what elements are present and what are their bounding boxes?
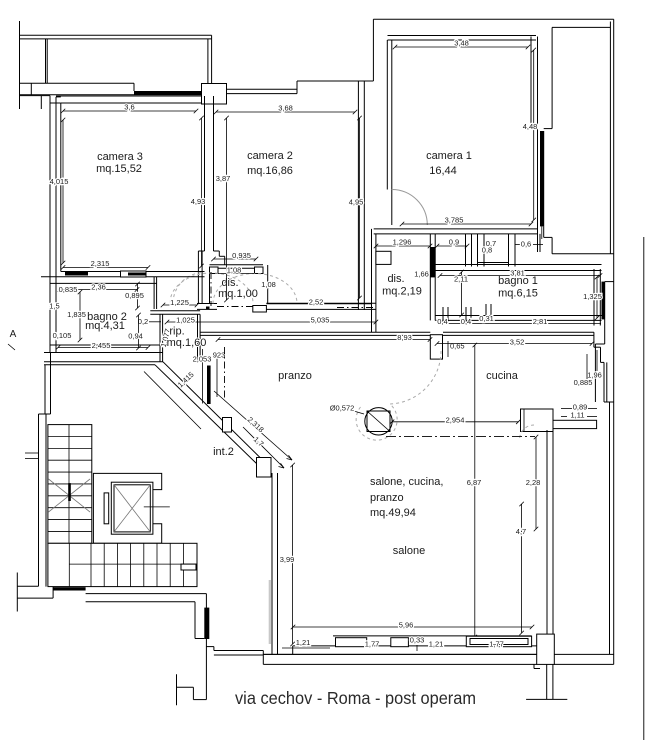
svg-text:1,296: 1,296: [393, 238, 412, 247]
svg-text:3,52: 3,52: [510, 338, 525, 347]
svg-text:1,08: 1,08: [261, 280, 276, 289]
svg-text:1,08: 1,08: [227, 266, 242, 275]
svg-text:pranzo: pranzo: [278, 370, 312, 382]
svg-text:0,4: 0,4: [437, 317, 447, 326]
svg-text:0,6: 0,6: [521, 239, 531, 248]
svg-text:salone, cucina,: salone, cucina,: [370, 476, 443, 488]
svg-text:mq.16,86: mq.16,86: [247, 165, 293, 177]
svg-text:0,895: 0,895: [125, 291, 144, 300]
svg-text:0,4: 0,4: [461, 317, 471, 326]
svg-text:16,44: 16,44: [429, 165, 457, 177]
svg-text:0,94: 0,94: [128, 332, 143, 341]
svg-text:2,52: 2,52: [309, 298, 324, 307]
svg-text:1,66: 1,66: [414, 269, 429, 278]
svg-text:pranzo: pranzo: [370, 492, 404, 504]
svg-text:3,68: 3,68: [278, 104, 293, 113]
svg-text:5,96: 5,96: [399, 621, 414, 630]
svg-text:mq.2,19: mq.2,19: [382, 286, 422, 298]
svg-text:mq.4,31: mq.4,31: [85, 320, 125, 332]
svg-text:rip.: rip.: [169, 326, 184, 338]
svg-text:1,11: 1,11: [570, 411, 584, 420]
svg-text:1,025: 1,025: [176, 316, 195, 325]
svg-text:2,36: 2,36: [91, 283, 106, 292]
svg-text:3,785: 3,785: [445, 216, 464, 225]
svg-text:4,95: 4,95: [349, 198, 364, 207]
svg-text:1,325: 1,325: [583, 292, 602, 301]
svg-text:4,015: 4,015: [50, 177, 69, 186]
svg-text:A: A: [10, 329, 17, 340]
svg-text:2,954: 2,954: [446, 416, 465, 425]
svg-text:3,6: 3,6: [124, 103, 134, 112]
svg-text:0,835: 0,835: [59, 285, 78, 294]
svg-text:1,5: 1,5: [49, 302, 59, 311]
svg-text:mq.15,52: mq.15,52: [96, 163, 142, 175]
svg-text:camera 3: camera 3: [97, 151, 143, 163]
svg-text:2,28: 2,28: [526, 478, 541, 487]
svg-text:4,7: 4,7: [516, 527, 526, 536]
svg-text:camera 1: camera 1: [426, 150, 472, 162]
svg-text:Ø0,572: Ø0,572: [330, 404, 355, 413]
svg-text:2,455: 2,455: [92, 341, 111, 350]
svg-text:1,21: 1,21: [296, 638, 311, 647]
svg-text:0,885: 0,885: [574, 378, 593, 387]
svg-text:bagno 1: bagno 1: [498, 275, 538, 287]
svg-text:1,21: 1,21: [429, 640, 444, 649]
svg-text:1,77: 1,77: [365, 640, 380, 649]
svg-text:0,31: 0,31: [479, 314, 494, 323]
svg-text:0,8: 0,8: [482, 246, 492, 255]
svg-text:2,315: 2,315: [91, 259, 110, 268]
svg-text:3,87: 3,87: [216, 174, 231, 183]
svg-text:3,99: 3,99: [280, 555, 295, 564]
svg-text:1,835: 1,835: [67, 310, 86, 319]
svg-text:cucina: cucina: [486, 370, 519, 382]
svg-text:dis.: dis.: [387, 273, 404, 285]
svg-text:923: 923: [213, 351, 226, 360]
svg-text:0,2: 0,2: [138, 317, 148, 326]
svg-text:mq.1,60: mq.1,60: [167, 337, 207, 349]
svg-text:5,035: 5,035: [311, 316, 330, 325]
svg-text:1,77: 1,77: [489, 640, 504, 649]
svg-text:8,93: 8,93: [397, 333, 412, 342]
svg-text:0,9: 0,9: [449, 238, 459, 247]
svg-text:int.2: int.2: [213, 446, 234, 458]
svg-text:1,225: 1,225: [170, 298, 189, 307]
svg-text:3,48: 3,48: [454, 39, 469, 48]
svg-text:0,935: 0,935: [232, 251, 251, 260]
svg-text:2,11: 2,11: [454, 275, 468, 284]
svg-text:salone: salone: [393, 545, 425, 557]
svg-text:4,48: 4,48: [523, 122, 538, 131]
svg-text:via cechov - Roma - post opera: via cechov - Roma - post operam: [235, 688, 476, 708]
svg-text:0,105: 0,105: [53, 331, 72, 340]
svg-text:4,93: 4,93: [191, 197, 206, 206]
svg-text:6,87: 6,87: [467, 478, 482, 487]
svg-text:2,81: 2,81: [533, 317, 548, 326]
svg-text:camera 2: camera 2: [247, 150, 293, 162]
svg-text:0,33: 0,33: [410, 636, 425, 645]
svg-text:2,053: 2,053: [193, 355, 212, 364]
svg-text:mq.6,15: mq.6,15: [498, 288, 538, 300]
svg-text:0,65: 0,65: [450, 342, 465, 351]
svg-text:mq.1,00: mq.1,00: [218, 288, 258, 300]
svg-text:mq.49,94: mq.49,94: [370, 507, 416, 519]
